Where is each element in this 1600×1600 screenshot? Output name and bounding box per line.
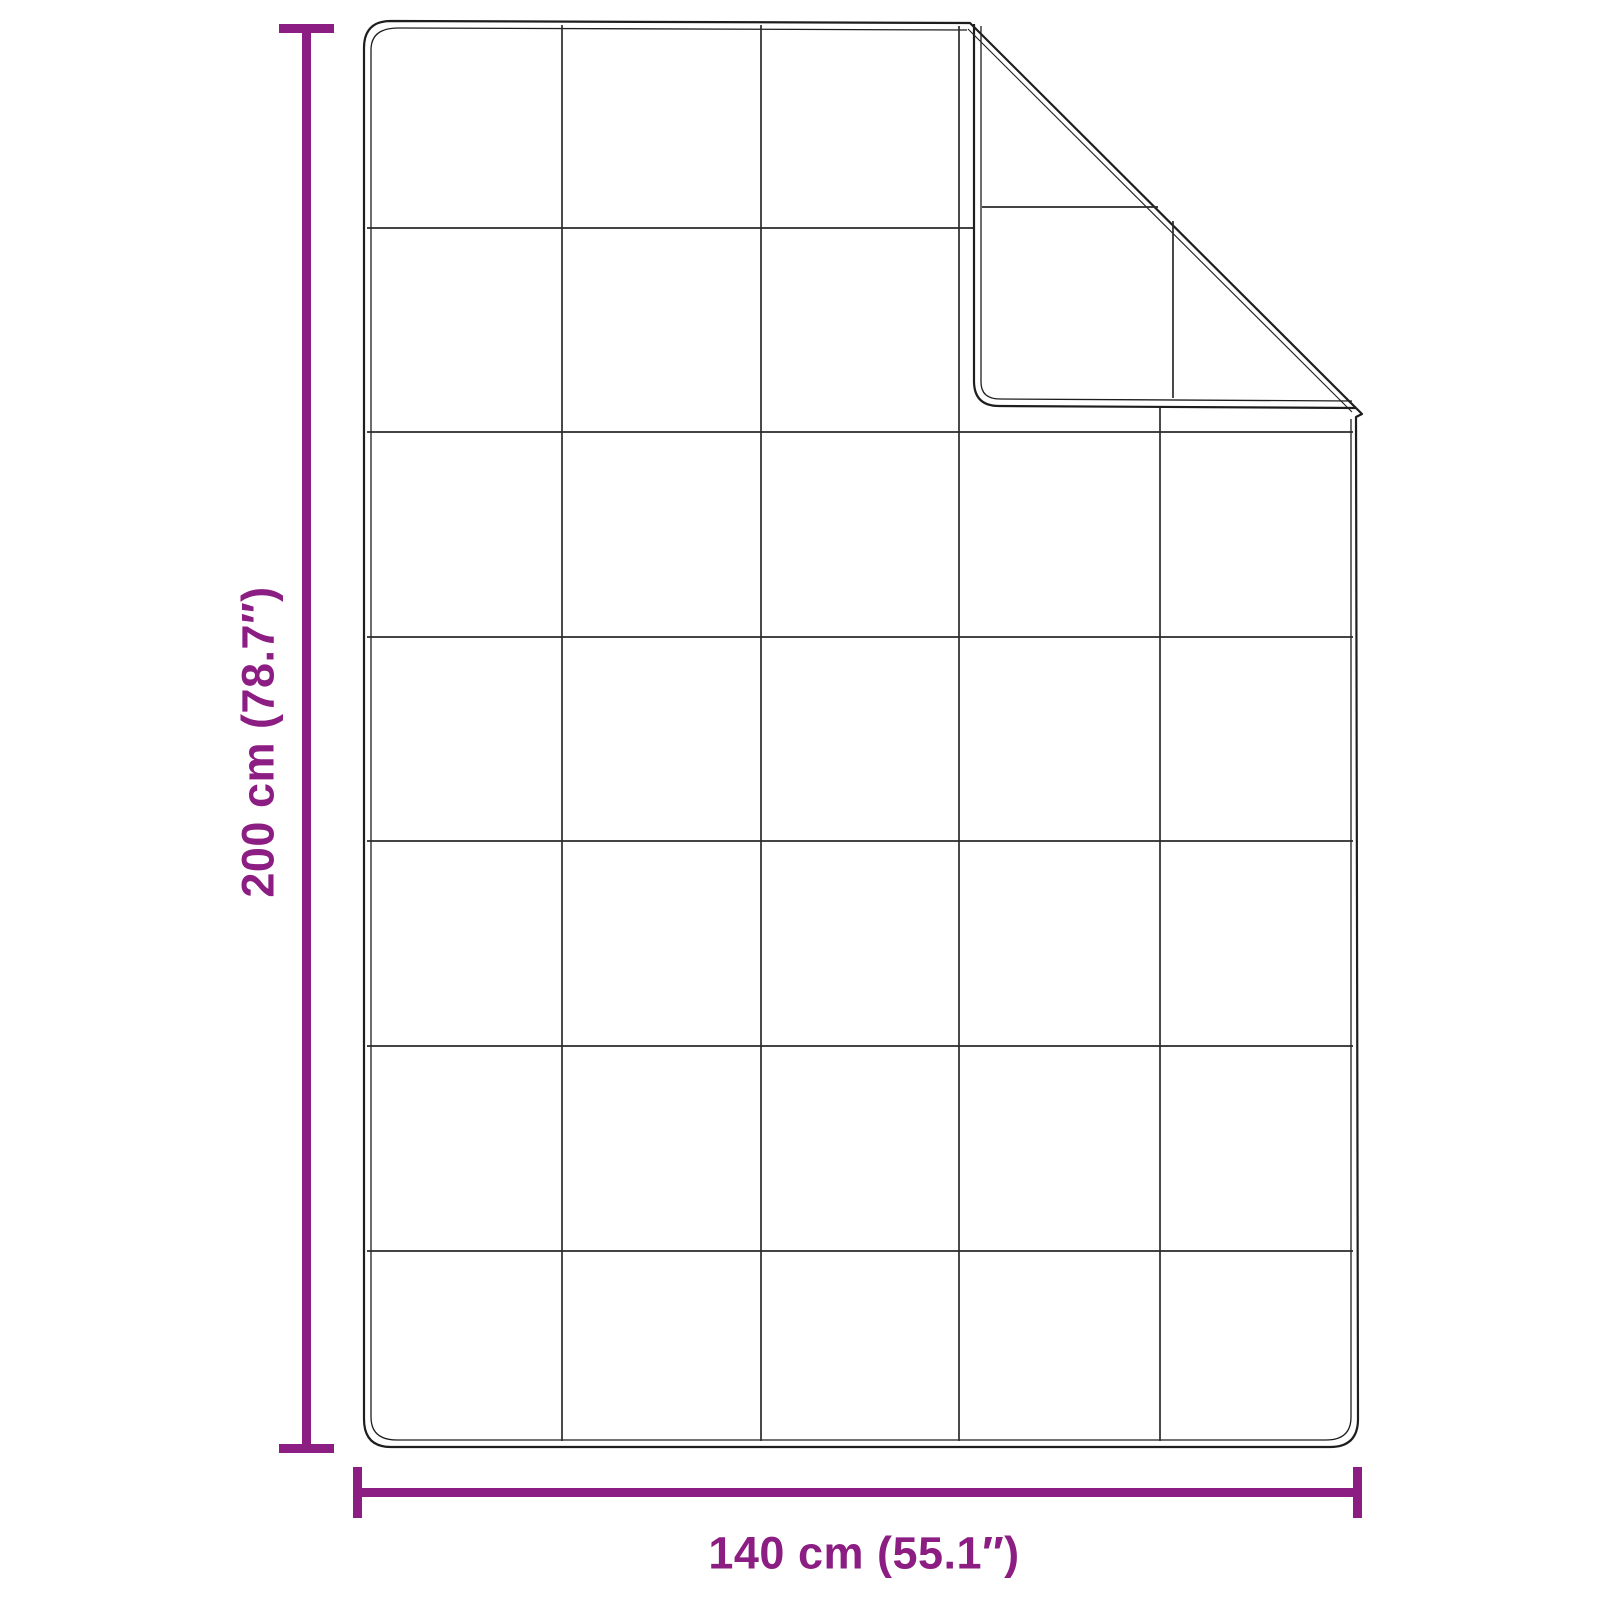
height-dimension-line — [302, 28, 311, 1449]
width-dimension-label: 140 cm (55.1″) — [708, 1528, 1019, 1579]
blanket-inner-piping — [371, 28, 1351, 1440]
height-dimension-label: 200 cm (78.7″) — [233, 586, 284, 897]
width-dimension: 140 cm (55.1″) — [353, 1467, 1362, 1579]
width-dimension-right-cap — [1353, 1467, 1362, 1518]
quilt-grid — [367, 25, 1353, 1441]
blanket-outline — [364, 21, 1362, 1447]
blanket-outer-edge — [364, 21, 1362, 1447]
blanket-dimension-drawing: 200 cm (78.7″) 140 cm (55.1″) — [0, 0, 1600, 1600]
width-dimension-line — [353, 1488, 1362, 1497]
fold-crease-line — [968, 29, 1352, 412]
dimension-diagram: 200 cm (78.7″) 140 cm (55.1″) — [0, 0, 1600, 1600]
width-dimension-left-cap — [353, 1467, 362, 1518]
height-dimension: 200 cm (78.7″) — [233, 24, 335, 1453]
height-dimension-bottom-cap — [279, 1444, 334, 1453]
flap-edge-inner — [981, 26, 1352, 401]
height-dimension-top-cap — [279, 24, 334, 33]
